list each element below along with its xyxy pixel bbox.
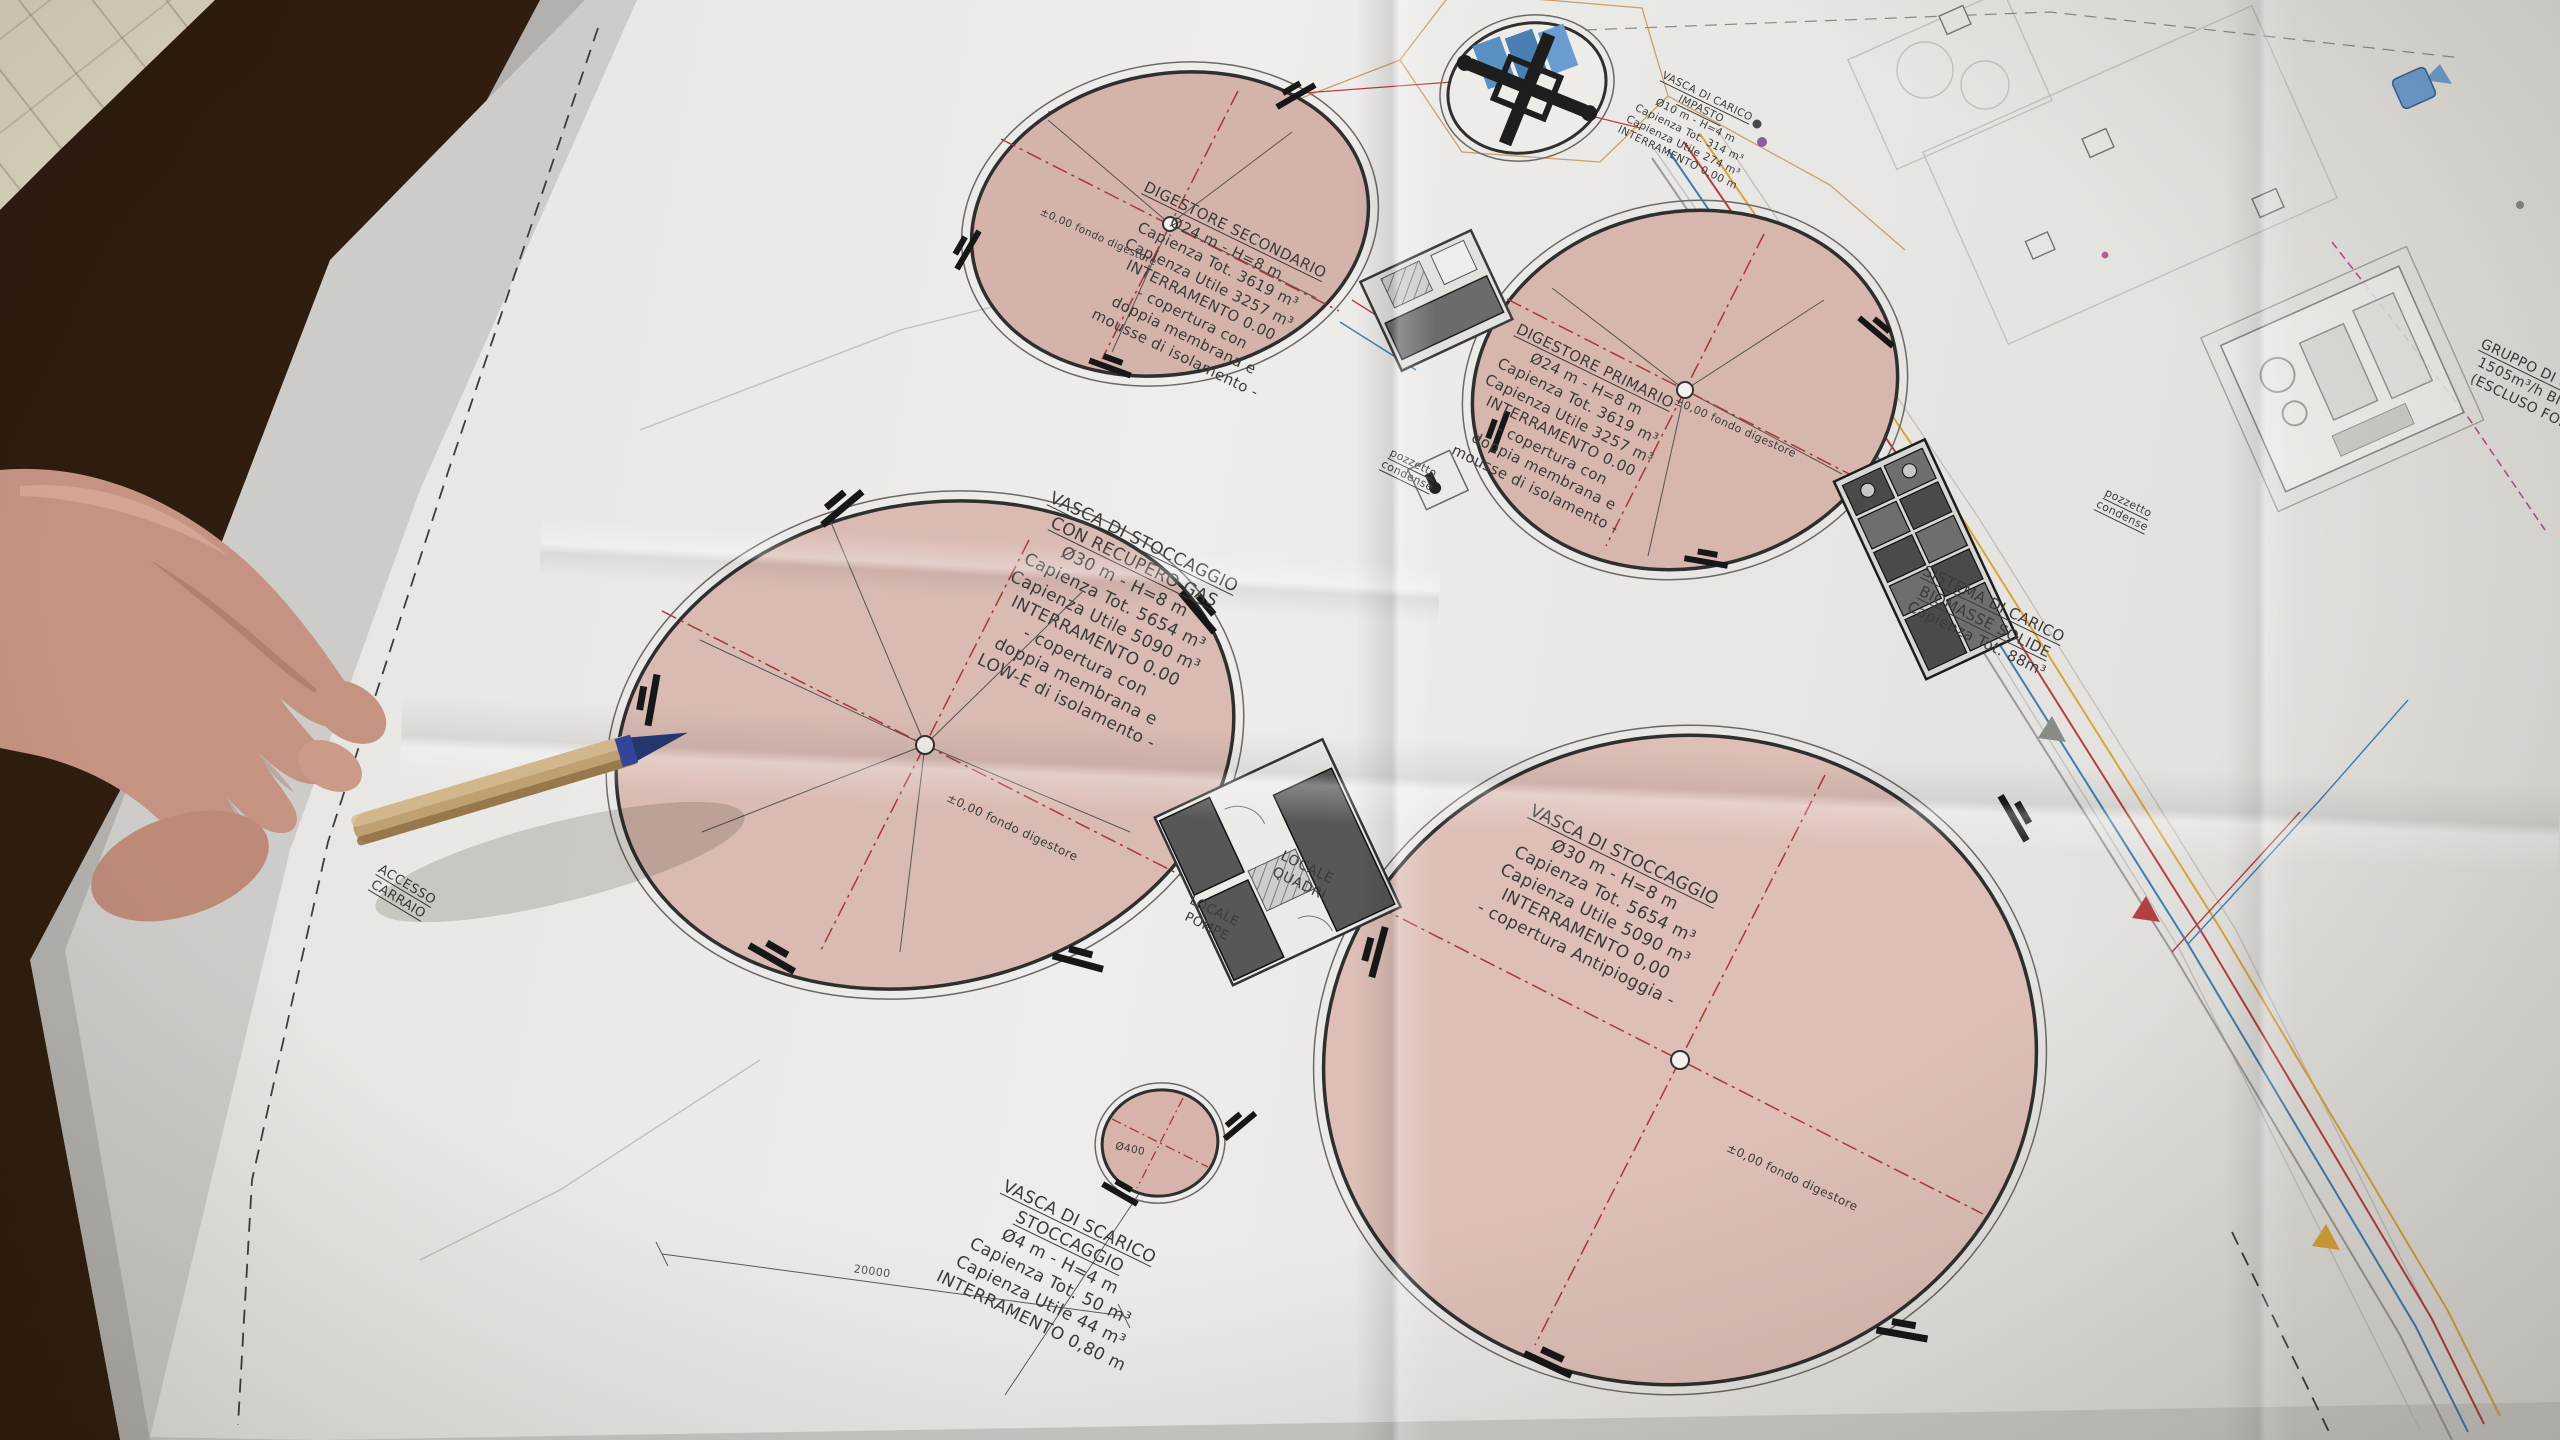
hand-and-pen (0, 0, 2560, 1440)
photo-of-blueprint: DIGESTORE SECONDARIOØ24 m - H=8 mCapienz… (0, 0, 2560, 1440)
pen-tip (627, 721, 692, 763)
